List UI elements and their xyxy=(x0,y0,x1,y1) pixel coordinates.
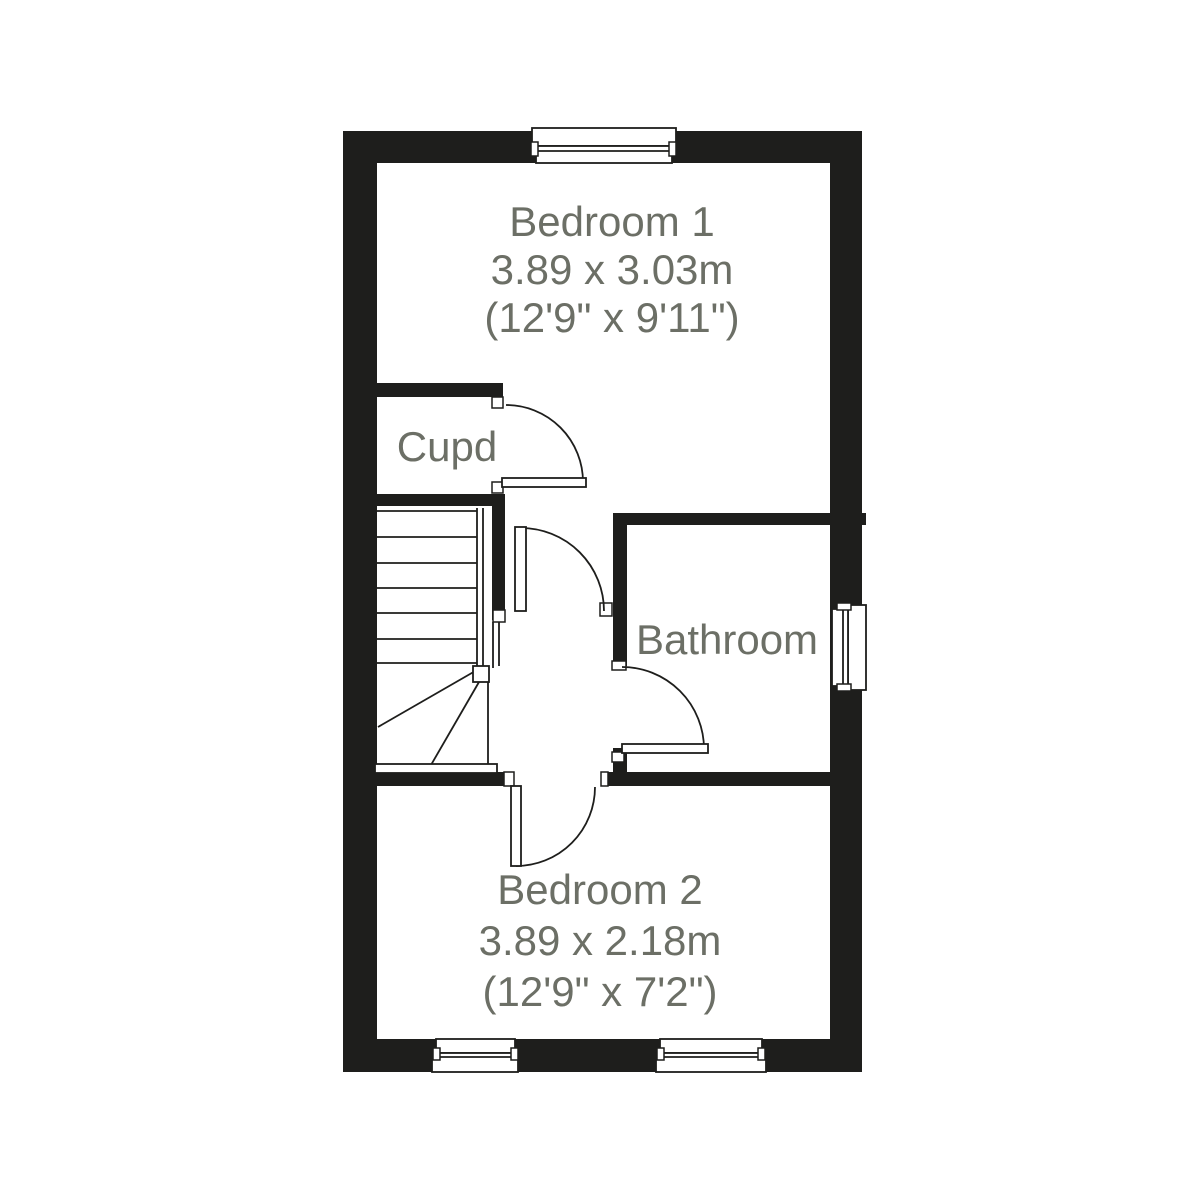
window-pane-outer xyxy=(532,128,676,146)
window-end-cap xyxy=(837,684,851,691)
window-pane-inner xyxy=(660,1039,762,1053)
window-end-cap xyxy=(837,603,851,610)
window-bottom-right xyxy=(656,1039,766,1072)
door-landing xyxy=(493,527,612,622)
wall-bedroom1-cupboard xyxy=(343,383,503,397)
window-bottom-left xyxy=(432,1039,518,1072)
door-stop xyxy=(492,397,503,408)
bedroom2-size-imperial: (12'9" x 7'2") xyxy=(483,968,718,1015)
door-bathroom xyxy=(612,661,708,762)
stair-bottom-riser xyxy=(375,764,497,773)
wall-cupboard-bottom xyxy=(343,494,505,506)
wall-bedroom2-top-left xyxy=(343,772,513,786)
bedroom2-size-metric: 3.89 x 2.18m xyxy=(479,917,722,964)
door-cupboard xyxy=(492,397,586,493)
bedroom2-name: Bedroom 2 xyxy=(497,866,702,913)
bedroom1-size-imperial: (12'9" x 9'11") xyxy=(484,294,739,341)
door-leaf xyxy=(515,527,526,611)
door-swing-arc xyxy=(622,667,704,749)
wall-bathroom-top xyxy=(613,513,862,525)
door-bedroom2 xyxy=(504,772,608,866)
window-end-cap xyxy=(511,1048,518,1060)
door-leaf xyxy=(502,478,586,487)
window-pane-inner xyxy=(436,1039,515,1053)
bedroom1-size-metric: 3.89 x 3.03m xyxy=(491,246,734,293)
door-leaf xyxy=(511,786,521,866)
window-pane-inner xyxy=(832,609,848,686)
wall-bedroom2-top-right xyxy=(603,772,862,786)
floor-plan: Bedroom 1 3.89 x 3.03m (12'9" x 9'11") C… xyxy=(0,0,1200,1200)
window-end-cap xyxy=(657,1048,664,1060)
window-end-cap xyxy=(531,142,538,156)
window-pane-outer xyxy=(656,1053,766,1072)
window-end-cap xyxy=(433,1048,440,1060)
window-pane-outer xyxy=(432,1053,518,1072)
door-stop xyxy=(493,610,505,622)
window-right-bathroom xyxy=(832,603,866,691)
floor-plan-page: Bedroom 1 3.89 x 3.03m (12'9" x 9'11") C… xyxy=(0,0,1200,1200)
door-stop xyxy=(601,772,608,786)
door-swing-arc xyxy=(506,405,583,482)
stair-newel-post xyxy=(473,666,489,682)
stair-winder-line xyxy=(431,682,479,765)
wall-exterior-left xyxy=(343,131,377,1072)
window-end-cap xyxy=(758,1048,765,1060)
door-leaf xyxy=(622,744,708,753)
door-stop xyxy=(600,603,612,616)
wall-exterior-right xyxy=(830,131,862,1072)
stair-winder-line xyxy=(378,670,477,727)
door-stop xyxy=(504,772,514,786)
window-pane-outer xyxy=(848,605,866,690)
bedroom1-name: Bedroom 1 xyxy=(509,198,714,245)
door-stop xyxy=(612,661,626,670)
wall-exterior-bottom xyxy=(343,1039,862,1072)
wall-nub-right xyxy=(862,513,866,525)
door-swing-arc xyxy=(516,787,595,866)
wall-stair-divider xyxy=(492,494,505,620)
window-top xyxy=(531,128,676,163)
door-swing-arc xyxy=(521,528,604,611)
stairs xyxy=(375,508,499,773)
wall-bathroom-left-upper xyxy=(613,513,627,666)
bathroom-name: Bathroom xyxy=(636,616,818,663)
window-pane-inner xyxy=(536,146,672,163)
window-end-cap xyxy=(669,142,676,156)
cupboard-name: Cupd xyxy=(397,423,497,470)
